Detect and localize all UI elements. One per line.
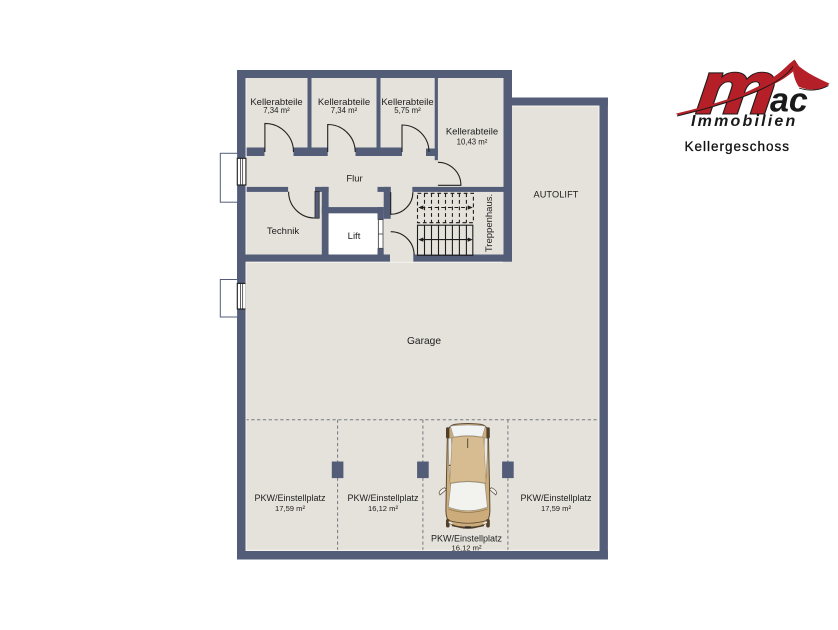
svg-text:17,59 m²: 17,59 m² xyxy=(275,504,305,513)
svg-text:Lift: Lift xyxy=(348,231,361,242)
svg-text:7,34 m²: 7,34 m² xyxy=(263,106,290,115)
svg-text:7,34 m²: 7,34 m² xyxy=(331,106,358,115)
svg-text:Kellerabteile: Kellerabteile xyxy=(446,127,498,138)
svg-text:Technik: Technik xyxy=(267,226,299,237)
svg-text:17,59 m²: 17,59 m² xyxy=(541,504,571,513)
svg-text:Kellergeschoss: Kellergeschoss xyxy=(685,139,791,154)
svg-text:PKW/Einstellplatz: PKW/Einstellplatz xyxy=(431,534,503,544)
svg-text:Garage: Garage xyxy=(407,336,441,347)
svg-text:Immobilien: Immobilien xyxy=(691,113,797,130)
svg-text:Treppenhaus.: Treppenhaus. xyxy=(484,194,495,252)
svg-text:PKW/Einstellplatz: PKW/Einstellplatz xyxy=(347,493,419,503)
svg-text:5,75 m²: 5,75 m² xyxy=(394,106,421,115)
svg-text:16,12 m²: 16,12 m² xyxy=(368,504,398,513)
svg-text:Flur: Flur xyxy=(346,174,362,185)
svg-text:PKW/Einstellplatz: PKW/Einstellplatz xyxy=(520,493,592,503)
svg-text:10,43 m²: 10,43 m² xyxy=(457,138,488,147)
svg-text:16,12 m²: 16,12 m² xyxy=(452,543,482,552)
svg-text:AUTOLIFT: AUTOLIFT xyxy=(533,189,578,199)
svg-text:PKW/Einstellplatz: PKW/Einstellplatz xyxy=(254,493,326,503)
